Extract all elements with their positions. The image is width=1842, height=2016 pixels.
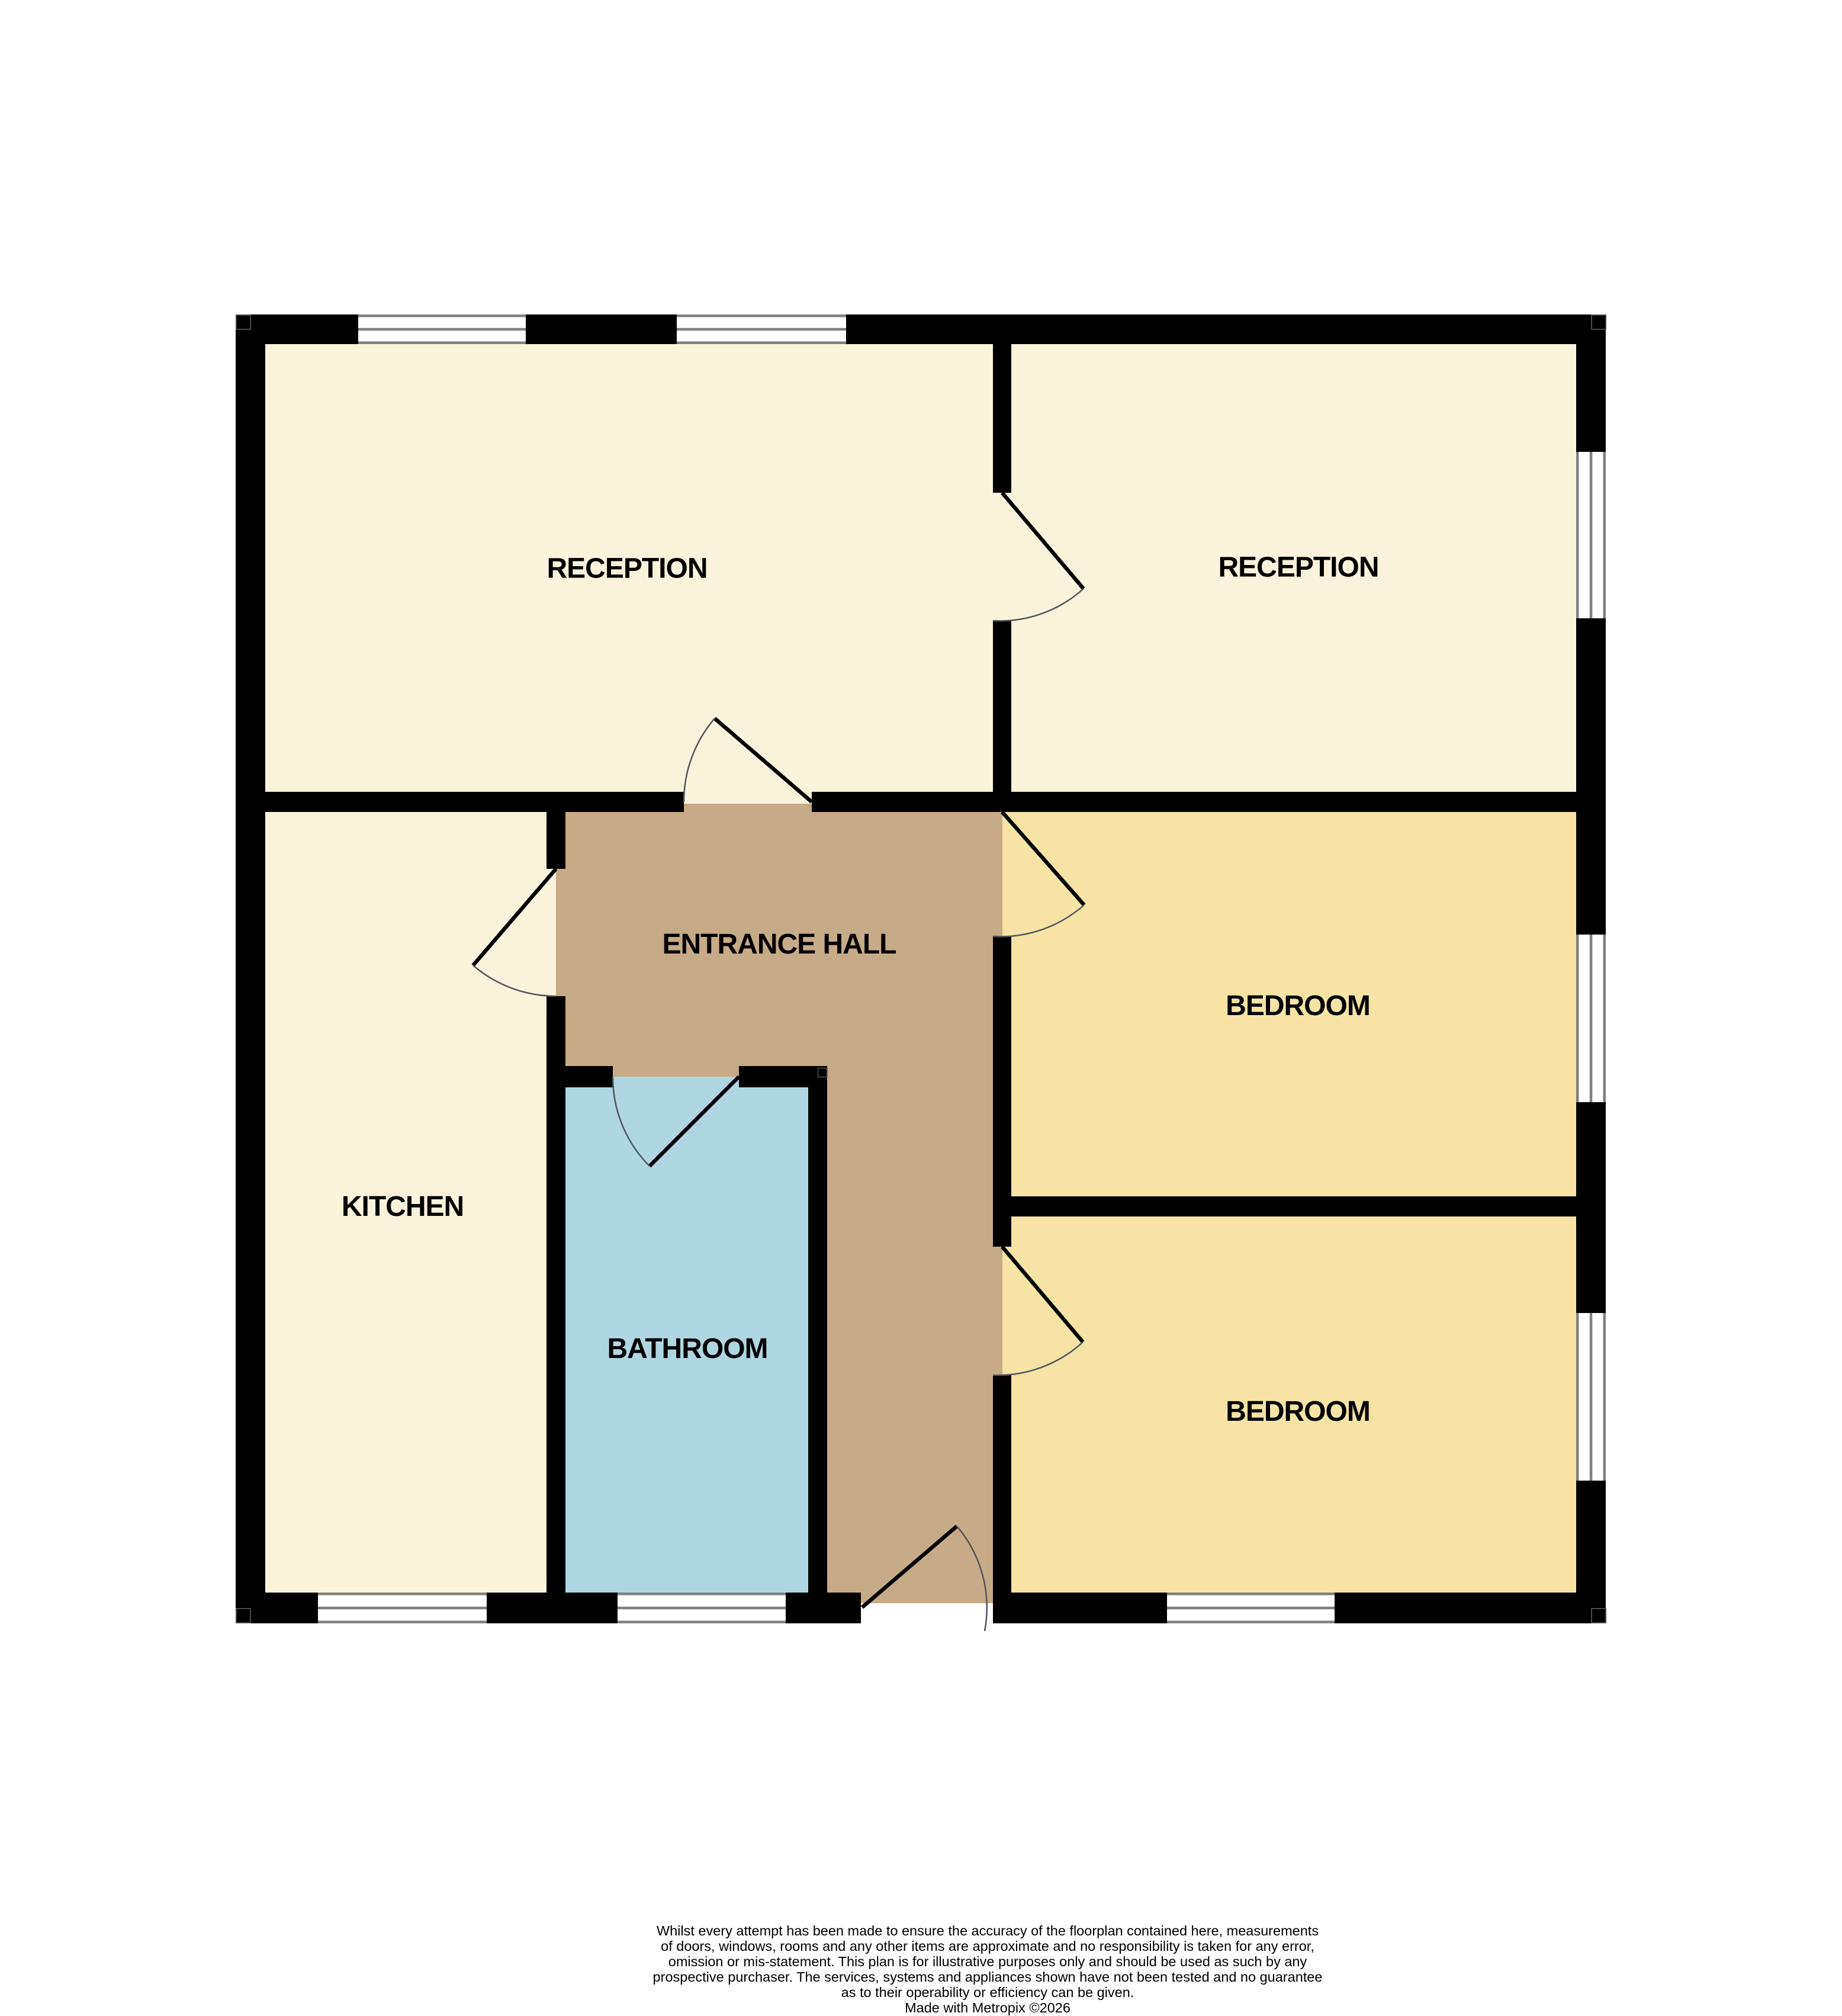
- svg-text:BEDROOM: BEDROOM: [1226, 1396, 1370, 1427]
- svg-text:omission or mis-statement. Thi: omission or mis-statement. This plan is …: [668, 1954, 1307, 1969]
- svg-text:KITCHEN: KITCHEN: [342, 1191, 464, 1222]
- svg-text:Made with Metropix ©2026: Made with Metropix ©2026: [905, 2000, 1071, 2015]
- svg-text:BATHROOM: BATHROOM: [607, 1333, 767, 1365]
- svg-text:BEDROOM: BEDROOM: [1226, 990, 1370, 1022]
- svg-text:RECEPTION: RECEPTION: [547, 553, 707, 585]
- svg-text:Whilst every attempt has been: Whilst every attempt has been made to en…: [657, 1923, 1319, 1938]
- svg-text:ENTRANCE HALL: ENTRANCE HALL: [663, 929, 896, 960]
- svg-text:prospective purchaser. The ser: prospective purchaser. The services, sys…: [653, 1969, 1323, 1985]
- svg-text:as to their operability or eff: as to their operability or efficiency ca…: [841, 1985, 1134, 2000]
- svg-text:RECEPTION: RECEPTION: [1218, 552, 1378, 583]
- svg-text:of doors, windows, rooms and a: of doors, windows, rooms and any other i…: [661, 1938, 1314, 1954]
